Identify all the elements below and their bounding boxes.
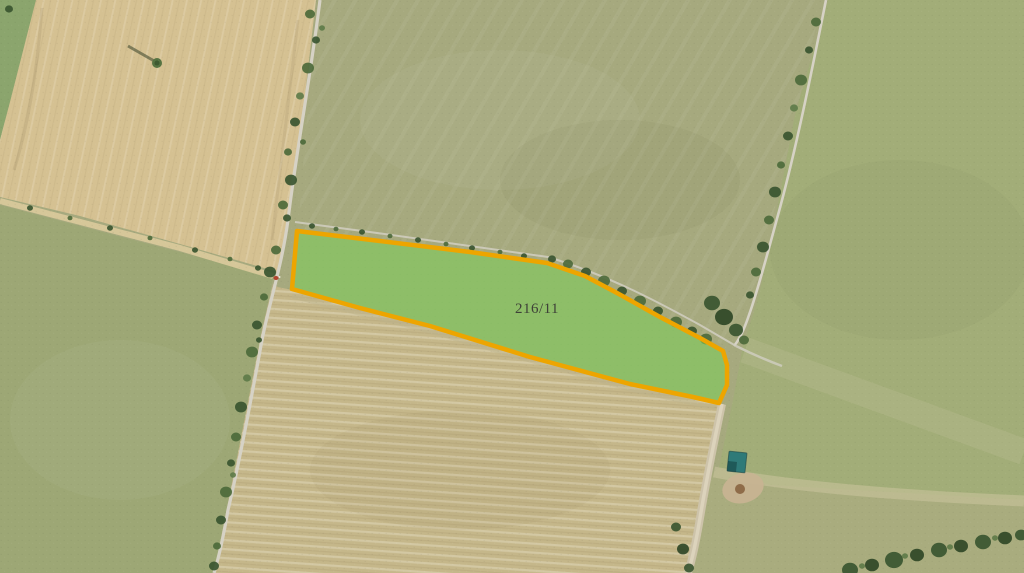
tree xyxy=(769,187,781,198)
tree xyxy=(5,5,13,12)
tree xyxy=(309,223,315,228)
tree xyxy=(910,549,924,562)
tree xyxy=(811,18,821,27)
shed-shadow-side xyxy=(727,461,737,472)
tree xyxy=(865,559,879,572)
tree xyxy=(227,459,235,466)
tree xyxy=(246,347,258,358)
tree xyxy=(671,523,681,532)
tree xyxy=(783,132,793,141)
tree xyxy=(998,532,1012,545)
tree xyxy=(312,36,320,43)
tree xyxy=(704,296,720,310)
tree xyxy=(228,257,233,262)
tree xyxy=(757,242,769,253)
tree xyxy=(885,552,903,568)
tree xyxy=(729,324,743,337)
shed xyxy=(727,451,747,473)
tree xyxy=(252,321,262,330)
tree xyxy=(264,267,276,278)
tree xyxy=(334,227,339,232)
tree xyxy=(148,236,153,241)
tree xyxy=(300,139,306,144)
tree xyxy=(283,214,291,221)
tree xyxy=(285,175,297,186)
tree xyxy=(255,265,261,270)
tree xyxy=(992,535,998,540)
tree xyxy=(777,161,785,168)
tree xyxy=(235,402,247,413)
tree xyxy=(284,148,292,155)
soil-spot xyxy=(735,484,745,494)
tree xyxy=(954,540,968,553)
tree xyxy=(388,234,393,239)
tree xyxy=(902,553,908,558)
tree xyxy=(192,247,198,252)
tree xyxy=(715,309,733,325)
tree xyxy=(296,92,304,99)
vehicle-highlight xyxy=(279,276,281,278)
tree xyxy=(319,25,325,30)
tree xyxy=(790,104,798,111)
tree xyxy=(746,291,754,298)
tree xyxy=(243,374,251,381)
tree xyxy=(764,216,774,225)
tree xyxy=(271,246,281,255)
tree xyxy=(444,242,449,247)
tree xyxy=(209,562,219,571)
tree xyxy=(216,516,226,525)
tree xyxy=(859,563,865,568)
tree xyxy=(739,336,749,345)
tree xyxy=(302,63,314,74)
tree xyxy=(107,225,113,230)
aerial-imagery: 216/11 xyxy=(0,0,1024,573)
aerial-map: 216/11 xyxy=(0,0,1024,573)
vehicle-body xyxy=(273,276,278,280)
tree xyxy=(231,433,241,442)
tree xyxy=(975,535,991,549)
tree xyxy=(751,268,761,277)
tree xyxy=(230,472,236,477)
tree xyxy=(359,229,365,234)
tree xyxy=(795,75,807,86)
tree xyxy=(684,564,694,573)
tree xyxy=(305,10,315,19)
tree xyxy=(947,544,953,549)
tree xyxy=(677,544,689,555)
tree xyxy=(415,237,421,242)
tree xyxy=(27,205,33,210)
tree xyxy=(278,201,288,210)
tree xyxy=(68,216,73,221)
tree xyxy=(498,250,503,255)
tree xyxy=(290,118,300,127)
tree xyxy=(220,487,232,498)
tree xyxy=(931,543,947,557)
tree xyxy=(805,46,813,53)
parcel-label: 216/11 xyxy=(515,301,559,317)
tree xyxy=(256,337,262,342)
tree xyxy=(260,293,268,300)
tree xyxy=(213,542,221,549)
